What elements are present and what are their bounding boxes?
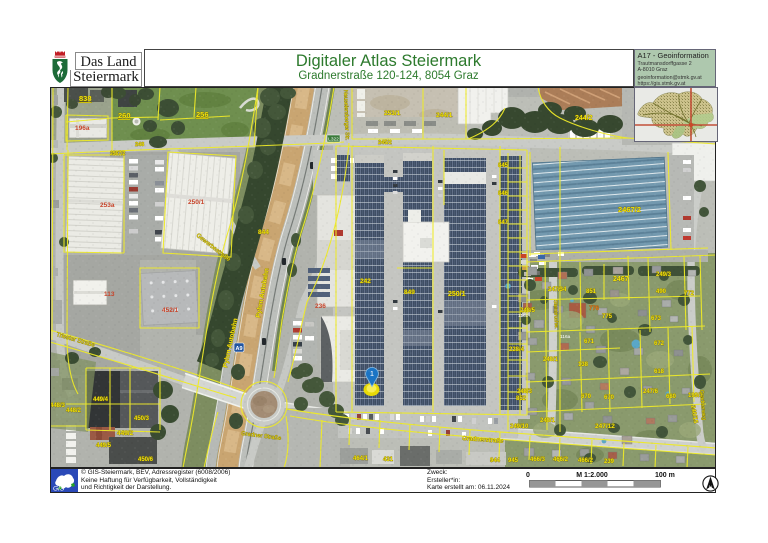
svg-text:GIS: GIS xyxy=(53,485,65,492)
svg-text:N: N xyxy=(709,485,712,490)
